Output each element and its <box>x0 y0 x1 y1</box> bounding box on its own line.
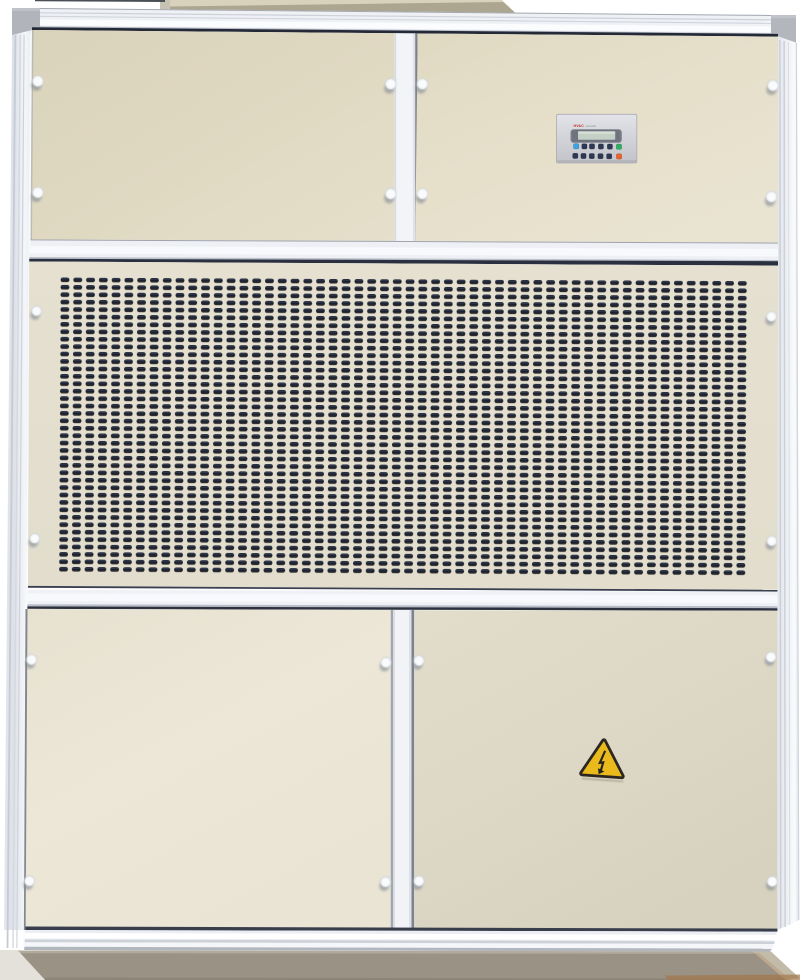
svg-text:controller: controller <box>586 124 597 128</box>
svg-text:HVAC: HVAC <box>574 124 585 128</box>
